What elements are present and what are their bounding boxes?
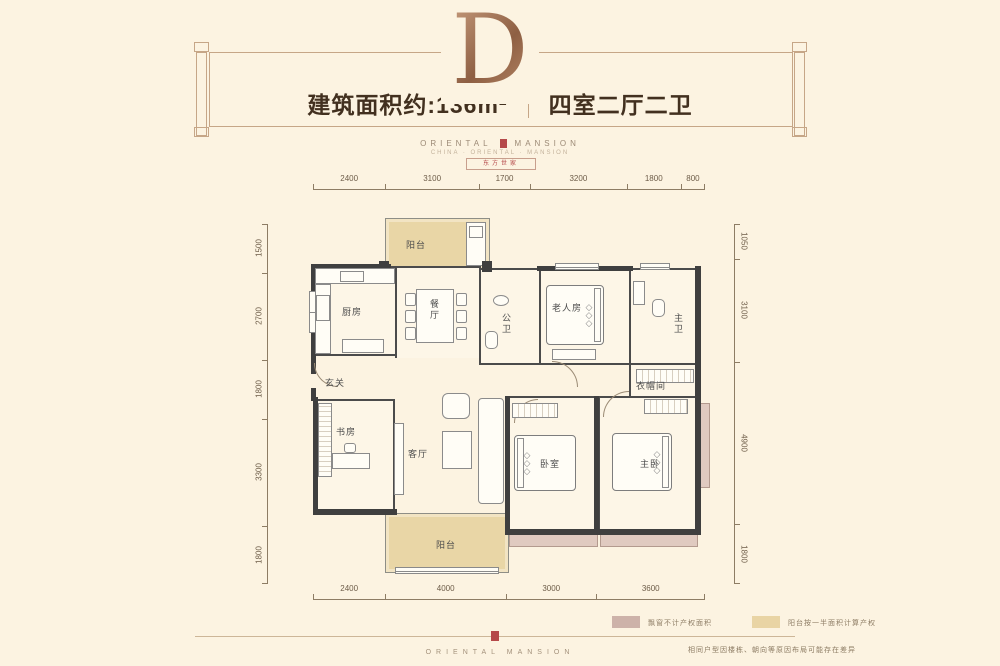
frame-ornament-left-bottom: [194, 127, 209, 137]
dim-segment: 3200: [530, 174, 627, 190]
dim-segment: 1800: [250, 526, 268, 584]
bay-window-bedroom: [509, 533, 598, 547]
wall-segment: [311, 388, 316, 401]
brand-seal-box: 东方世家: [466, 158, 536, 170]
dim-segment: 1800: [734, 524, 752, 584]
dim-segment: 3300: [250, 419, 268, 526]
wardrobe-icon: [644, 399, 688, 414]
label-elder-room: 老人房: [552, 301, 582, 314]
toilet-icon: [652, 299, 665, 317]
armchair-icon: [442, 393, 470, 419]
desk-chair-icon: [344, 443, 356, 453]
label-bedroom: 卧室: [540, 457, 560, 470]
wall-segment: [594, 396, 599, 535]
brand-right: MANSION: [515, 139, 580, 148]
kitchen-sink-icon: [340, 271, 364, 282]
unit-type-letter-wrap: D: [441, 2, 539, 104]
dim-segment: 2400: [313, 584, 385, 600]
bed-decor: ◇◇◇: [585, 303, 595, 327]
master-door-arc: [603, 391, 629, 417]
unit-type-letter: D: [452, 2, 529, 100]
label-balcony-top: 阳台: [406, 238, 426, 251]
wall-segment: [505, 396, 510, 535]
layout-label: 四室二厅二卫: [549, 92, 693, 118]
dim-bottom: 2400 4000 3000 3600: [313, 584, 705, 600]
label-foyer: 玄关: [325, 376, 345, 389]
floorplan: ◇◇◇ ◇◇◇ ◇◇◇ 阳台 厨房 餐厅 公卫: [300, 203, 712, 575]
chair-icon: [456, 327, 467, 340]
dim-top: 2400 3100 1700 3200 1800 800: [313, 174, 705, 190]
legend-label-balcony: 阳台按一半面积计算产权: [788, 618, 876, 628]
label-master-bath: 主卫: [672, 313, 685, 335]
desk-icon: [332, 453, 370, 469]
chair-icon: [456, 310, 467, 323]
frame-ornament-right-bottom: [792, 127, 807, 137]
dim-segment: 4900: [734, 362, 752, 525]
footer-disclaimer: 相同户型因楼栋、朝向等原因布局可能存在差异: [688, 645, 856, 655]
frame-ornament-right-top: [792, 42, 807, 52]
dresser-icon: [552, 349, 596, 360]
window-icon: [395, 567, 499, 574]
dim-left: 1500 2700 1800 3300 1800: [250, 224, 268, 584]
chair-icon: [405, 327, 416, 340]
wall-segment: [507, 529, 599, 535]
window-icon: [555, 263, 599, 270]
label-balcony-bottom: 阳台: [436, 538, 456, 551]
wall-segment: [598, 529, 700, 535]
tv-cabinet-icon: [394, 423, 404, 495]
dim-segment: 4000: [385, 584, 506, 600]
label-kitchen: 厨房: [342, 305, 362, 318]
dim-right: 1050 3100 4900 1800: [734, 224, 752, 584]
label-guest-bath: 公卫: [500, 313, 513, 335]
stove-icon: [316, 295, 330, 321]
footer-seal-icon: [491, 631, 499, 641]
headboard-icon: [662, 436, 669, 488]
wall-segment: [482, 261, 492, 272]
laundry-cabinet-door-icon: [469, 226, 483, 238]
label-cloakroom: 衣帽间: [636, 379, 666, 392]
dim-segment: 3100: [734, 259, 752, 362]
dim-segment: 1700: [479, 174, 530, 190]
vanity-icon: [633, 281, 645, 305]
bed-decor: ◇◇◇: [523, 451, 533, 475]
legend-label-bay: 飘窗不计产权面积: [648, 618, 712, 628]
chair-icon: [405, 293, 416, 306]
window-icon: [640, 263, 670, 270]
dim-segment: 2400: [313, 174, 385, 190]
wardrobe-icon: [512, 403, 558, 418]
dim-segment: 1500: [250, 224, 268, 273]
chair-icon: [456, 293, 467, 306]
sink-icon: [493, 295, 509, 306]
label-study: 书房: [336, 425, 356, 438]
bookshelf-icon: [318, 403, 332, 477]
wall-segment: [313, 509, 397, 515]
brand-left: ORIENTAL: [420, 139, 491, 148]
brand-line: ORIENTALMANSION: [0, 139, 1000, 148]
window-icon: [309, 291, 316, 333]
kitchen-cabinet-icon: [342, 339, 384, 353]
dim-segment: 800: [681, 174, 705, 190]
coffee-table-icon: [442, 431, 472, 469]
bed-icon: ◇◇◇: [546, 285, 604, 345]
bay-window-master: [600, 533, 698, 547]
legend-swatch-balcony: [752, 616, 780, 628]
dim-segment: 3600: [596, 584, 705, 600]
label-living: 客厅: [408, 447, 428, 460]
brand-seal-icon: [500, 139, 507, 148]
wall-segment: [695, 396, 701, 535]
frame-ornament-left-top: [194, 42, 209, 52]
dim-segment: 1800: [627, 174, 681, 190]
dim-segment: 2700: [250, 273, 268, 361]
dim-segment: 1800: [250, 360, 268, 418]
dim-segment: 3100: [385, 174, 478, 190]
headboard-icon: [594, 288, 601, 342]
sofa-icon: [478, 398, 504, 504]
brand-subtext: CHINA · ORIENTAL · MANSION: [0, 150, 1000, 156]
chair-icon: [405, 310, 416, 323]
legend-swatch-bay: [612, 616, 640, 628]
frame-ornament-left: [196, 52, 207, 136]
dim-segment: 1050: [734, 224, 752, 259]
toilet-icon: [485, 331, 498, 349]
label-dining: 餐厅: [428, 299, 441, 321]
label-master-bedroom: 主卧: [640, 457, 660, 470]
floorplan-page: D 建筑面积约:136m²四室二厅二卫 ORIENTALMANSION CHIN…: [0, 0, 1000, 666]
dim-segment: 3000: [506, 584, 596, 600]
frame-ornament-right: [794, 52, 805, 136]
wall-segment: [695, 266, 701, 409]
